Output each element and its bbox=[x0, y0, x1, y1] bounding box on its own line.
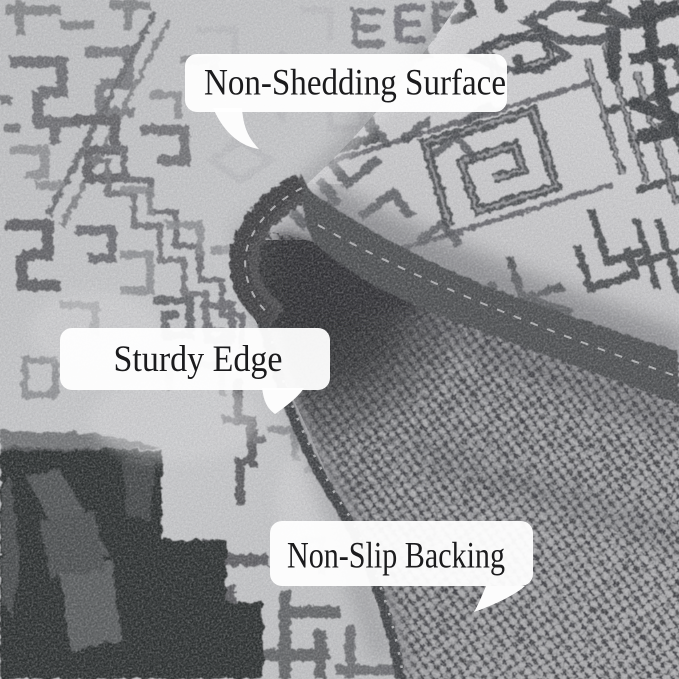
svg-text:Non-Shedding Surface: Non-Shedding Surface bbox=[204, 63, 506, 104]
svg-text:Non-Slip Backing: Non-Slip Backing bbox=[287, 536, 505, 577]
svg-text:Sturdy Edge: Sturdy Edge bbox=[114, 338, 283, 379]
